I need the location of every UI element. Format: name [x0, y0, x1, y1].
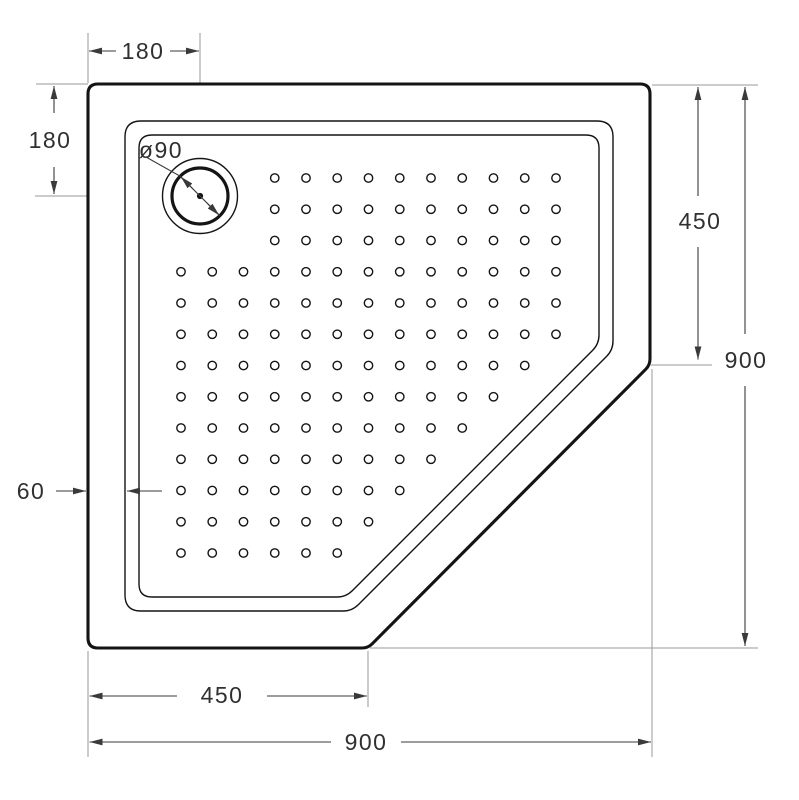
dim-label-right-straight-edge: 450	[679, 208, 722, 234]
anti-slip-dot	[271, 518, 279, 526]
anti-slip-dot	[333, 486, 341, 494]
anti-slip-dot	[302, 518, 310, 526]
anti-slip-dot	[489, 236, 497, 244]
anti-slip-dot	[208, 330, 216, 338]
anti-slip-dot	[177, 518, 185, 526]
anti-slip-dot	[521, 174, 529, 182]
anti-slip-dot	[396, 268, 404, 276]
anti-slip-dot	[208, 268, 216, 276]
anti-slip-dot	[239, 549, 247, 557]
shower-tray-drawing: 180 180 ø90 450 900 60 450 900	[0, 0, 799, 800]
anti-slip-dot	[427, 205, 435, 213]
anti-slip-dot	[521, 205, 529, 213]
anti-slip-dot	[333, 268, 341, 276]
anti-slip-dot	[396, 424, 404, 432]
anti-slip-dot	[271, 455, 279, 463]
anti-slip-dot	[177, 268, 185, 276]
anti-slip-dot	[552, 330, 560, 338]
dim-label-drain-offset-y: 180	[29, 127, 72, 153]
anti-slip-dot	[364, 268, 372, 276]
anti-slip-dot	[177, 361, 185, 369]
anti-slip-dot	[271, 424, 279, 432]
anti-slip-dot	[427, 455, 435, 463]
anti-slip-dot	[177, 393, 185, 401]
anti-slip-dot	[333, 330, 341, 338]
anti-slip-dot	[552, 299, 560, 307]
anti-slip-dot	[333, 424, 341, 432]
anti-slip-dot	[364, 174, 372, 182]
anti-slip-dot	[333, 299, 341, 307]
anti-slip-dot	[364, 236, 372, 244]
anti-slip-dot	[302, 455, 310, 463]
anti-slip-dot	[239, 330, 247, 338]
anti-slip-dot	[396, 361, 404, 369]
anti-slip-dot	[552, 236, 560, 244]
anti-slip-dot	[364, 393, 372, 401]
anti-slip-dot	[427, 268, 435, 276]
anti-slip-dot	[521, 299, 529, 307]
anti-slip-dot	[364, 361, 372, 369]
anti-slip-dot	[302, 299, 310, 307]
anti-slip-dot	[302, 268, 310, 276]
anti-slip-dot	[458, 361, 466, 369]
anti-slip-dot	[521, 268, 529, 276]
anti-slip-dot	[302, 549, 310, 557]
anti-slip-dot	[333, 455, 341, 463]
anti-slip-dot	[208, 518, 216, 526]
anti-slip-dot	[552, 268, 560, 276]
anti-slip-dot	[396, 299, 404, 307]
anti-slip-dot	[177, 299, 185, 307]
anti-slip-dot	[271, 361, 279, 369]
anti-slip-dot	[458, 174, 466, 182]
dim-label-overall-height: 900	[725, 347, 768, 373]
anti-slip-dot	[271, 330, 279, 338]
anti-slip-dot	[271, 393, 279, 401]
anti-slip-dot	[302, 393, 310, 401]
anti-slip-dot	[458, 424, 466, 432]
anti-slip-dot	[177, 549, 185, 557]
anti-slip-dot	[458, 205, 466, 213]
anti-slip-dot	[521, 330, 529, 338]
anti-slip-dot	[364, 486, 372, 494]
anti-slip-dot	[271, 549, 279, 557]
anti-slip-dot	[364, 455, 372, 463]
anti-slip-dot	[271, 299, 279, 307]
anti-slip-dot	[208, 361, 216, 369]
anti-slip-dot	[302, 330, 310, 338]
technical-drawing-page: 180 180 ø90 450 900 60 450 900	[0, 0, 799, 800]
anti-slip-dot	[521, 361, 529, 369]
anti-slip-dot	[458, 236, 466, 244]
anti-slip-dot	[271, 268, 279, 276]
anti-slip-dot	[302, 424, 310, 432]
anti-slip-dot	[521, 236, 529, 244]
anti-slip-dot	[396, 455, 404, 463]
dim-label-bottom-straight-edge: 450	[201, 682, 244, 708]
anti-slip-dot	[552, 205, 560, 213]
anti-slip-dot	[489, 205, 497, 213]
anti-slip-dot	[239, 486, 247, 494]
anti-slip-dot	[427, 424, 435, 432]
anti-slip-dot	[396, 330, 404, 338]
anti-slip-dot	[364, 518, 372, 526]
anti-slip-dot	[333, 236, 341, 244]
anti-slip-dot	[239, 361, 247, 369]
anti-slip-dot	[302, 174, 310, 182]
anti-slip-dot	[552, 174, 560, 182]
anti-slip-dot	[208, 393, 216, 401]
anti-slip-dot	[427, 174, 435, 182]
anti-slip-dot	[239, 424, 247, 432]
anti-slip-dot	[396, 486, 404, 494]
anti-slip-dot	[271, 205, 279, 213]
anti-slip-dot	[333, 361, 341, 369]
anti-slip-dot	[427, 361, 435, 369]
anti-slip-dot	[271, 236, 279, 244]
anti-slip-dot	[458, 330, 466, 338]
anti-slip-dot	[208, 424, 216, 432]
anti-slip-dot	[177, 486, 185, 494]
anti-slip-dot	[489, 330, 497, 338]
anti-slip-dot	[396, 236, 404, 244]
dim-label-drain-diameter: ø90	[139, 137, 183, 163]
anti-slip-dot	[177, 330, 185, 338]
anti-slip-dot	[489, 174, 497, 182]
dim-label-drain-offset-x: 180	[122, 38, 165, 64]
anti-slip-dot	[396, 205, 404, 213]
anti-slip-dot	[333, 518, 341, 526]
anti-slip-dot	[364, 299, 372, 307]
anti-slip-dot	[177, 455, 185, 463]
anti-slip-dot	[208, 299, 216, 307]
anti-slip-dot	[208, 486, 216, 494]
anti-slip-dot	[208, 455, 216, 463]
anti-slip-dot	[239, 268, 247, 276]
anti-slip-dot	[364, 330, 372, 338]
anti-slip-dot	[302, 361, 310, 369]
anti-slip-dot	[239, 299, 247, 307]
anti-slip-dot	[302, 486, 310, 494]
anti-slip-dot	[271, 174, 279, 182]
anti-slip-dot	[271, 486, 279, 494]
anti-slip-dot	[333, 205, 341, 213]
dim-label-rim-width: 60	[17, 478, 46, 504]
anti-slip-dot	[458, 299, 466, 307]
anti-slip-dot	[364, 424, 372, 432]
anti-slip-dot	[427, 299, 435, 307]
anti-slip-dot	[489, 361, 497, 369]
anti-slip-dot	[333, 393, 341, 401]
anti-slip-dot	[364, 205, 372, 213]
anti-slip-dot	[427, 330, 435, 338]
anti-slip-dot	[489, 268, 497, 276]
anti-slip-dot	[239, 518, 247, 526]
anti-slip-dot	[302, 236, 310, 244]
anti-slip-dot	[427, 393, 435, 401]
anti-slip-dot	[396, 174, 404, 182]
anti-slip-dot	[239, 393, 247, 401]
anti-slip-dot	[239, 455, 247, 463]
anti-slip-dot	[489, 393, 497, 401]
anti-slip-dot	[458, 268, 466, 276]
anti-slip-dot	[396, 393, 404, 401]
anti-slip-dot	[458, 393, 466, 401]
anti-slip-dot	[333, 174, 341, 182]
anti-slip-dot	[489, 299, 497, 307]
anti-slip-dot	[177, 424, 185, 432]
anti-slip-dot	[302, 205, 310, 213]
dim-label-overall-width: 900	[345, 729, 388, 755]
anti-slip-dot	[333, 549, 341, 557]
anti-slip-dot	[208, 549, 216, 557]
anti-slip-dot	[427, 236, 435, 244]
